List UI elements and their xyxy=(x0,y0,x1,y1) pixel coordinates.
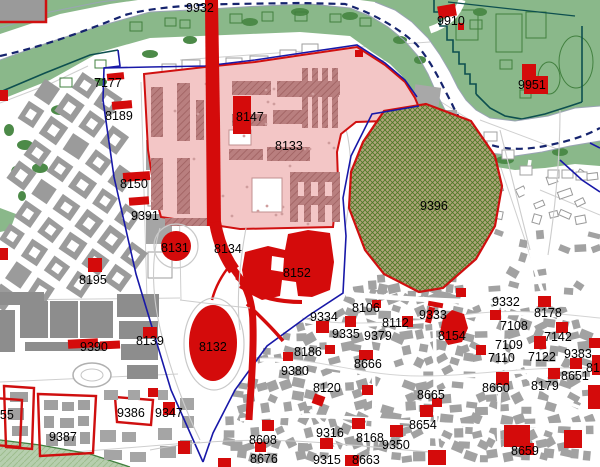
svg-text:9316: 9316 xyxy=(316,426,344,440)
svg-text:9386: 9386 xyxy=(117,406,145,420)
svg-text:9380: 9380 xyxy=(281,364,309,378)
svg-text:8659: 8659 xyxy=(511,444,539,458)
svg-text:9332: 9332 xyxy=(492,295,520,309)
svg-text:8666: 8666 xyxy=(354,357,382,371)
svg-text:9455: 9455 xyxy=(0,408,14,422)
svg-text:8179: 8179 xyxy=(531,379,559,393)
svg-text:8178: 8178 xyxy=(534,306,562,320)
svg-text:8106: 8106 xyxy=(352,301,380,315)
svg-text:8152: 8152 xyxy=(283,266,311,280)
svg-text:8195: 8195 xyxy=(79,273,107,287)
svg-text:9390: 9390 xyxy=(80,340,108,354)
svg-text:9334: 9334 xyxy=(310,310,338,324)
svg-text:8654: 8654 xyxy=(409,418,437,432)
svg-text:8608: 8608 xyxy=(249,433,277,447)
svg-text:9333: 9333 xyxy=(419,308,447,322)
svg-text:7109: 7109 xyxy=(495,338,523,352)
svg-text:7122: 7122 xyxy=(528,350,556,364)
svg-text:8133: 8133 xyxy=(275,139,303,153)
svg-text:9391: 9391 xyxy=(131,209,159,223)
svg-text:8186: 8186 xyxy=(294,345,322,359)
svg-text:7108: 7108 xyxy=(500,319,528,333)
svg-text:9396: 9396 xyxy=(420,199,448,213)
svg-text:8168: 8168 xyxy=(356,431,384,445)
svg-text:8161: 8161 xyxy=(586,361,600,375)
svg-text:7177: 7177 xyxy=(94,76,122,90)
svg-text:8663: 8663 xyxy=(352,453,380,467)
svg-text:8150: 8150 xyxy=(120,177,148,191)
svg-text:9910: 9910 xyxy=(437,14,465,28)
svg-text:8660: 8660 xyxy=(482,381,510,395)
svg-text:9335: 9335 xyxy=(332,327,360,341)
svg-text:9379: 9379 xyxy=(364,329,392,343)
svg-text:9932: 9932 xyxy=(186,1,214,15)
svg-text:8651: 8651 xyxy=(561,369,589,383)
svg-text:9951: 9951 xyxy=(518,78,546,92)
svg-text:8189: 8189 xyxy=(105,109,133,123)
svg-text:8131: 8131 xyxy=(161,241,189,255)
svg-text:8665: 8665 xyxy=(417,388,445,402)
svg-text:9383: 9383 xyxy=(564,347,592,361)
svg-text:8676: 8676 xyxy=(250,452,278,466)
svg-text:8120: 8120 xyxy=(313,381,341,395)
svg-text:9387: 9387 xyxy=(49,430,77,444)
svg-text:8134: 8134 xyxy=(214,242,242,256)
svg-text:7110: 7110 xyxy=(488,351,515,365)
svg-text:8154: 8154 xyxy=(438,329,466,343)
svg-text:8147: 8147 xyxy=(236,110,264,124)
svg-text:9347: 9347 xyxy=(155,406,183,420)
svg-text:9315: 9315 xyxy=(313,453,341,467)
svg-text:9350: 9350 xyxy=(382,438,410,452)
svg-text:8132: 8132 xyxy=(199,340,227,354)
svg-text:8112: 8112 xyxy=(382,316,409,330)
svg-text:8139: 8139 xyxy=(136,334,164,348)
svg-text:7142: 7142 xyxy=(544,330,572,344)
